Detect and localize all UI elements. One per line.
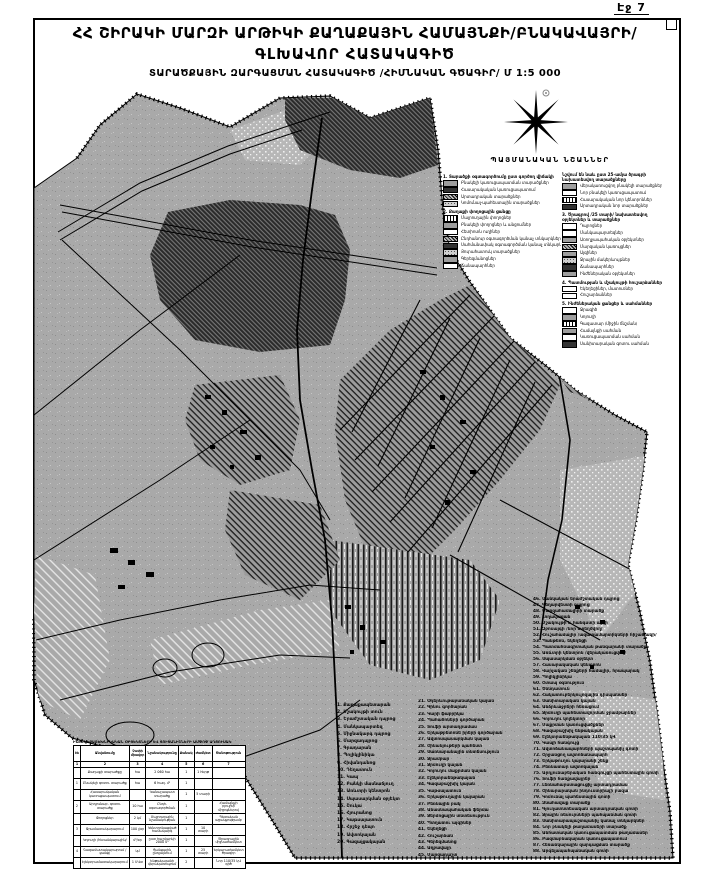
- legend-swatch-gray: [562, 183, 577, 190]
- legend-section-header: 2. Քաղաքի փողոցային ցանցը: [443, 209, 561, 214]
- legend-swatch-white: [562, 223, 577, 230]
- table-cell: Համայնքի բյուջեի միջոցներով: [212, 801, 245, 814]
- legend-item-label: Կոմունալ-պահեստային տարածքներ: [461, 200, 540, 207]
- legend-item: Կոմունալ-պահեստային տարածքներ: [443, 200, 561, 207]
- scanned-map-page: Էջ 7: [0, 0, 701, 882]
- legend-swatch-cross: [562, 286, 577, 293]
- table-cell: 5 տարի: [194, 790, 212, 801]
- legend-item-label: Սահմանափակ օգտագործման կանաչ տնկարկներ: [461, 242, 561, 249]
- legend-item-label: Ջրագիծ: [580, 307, 597, 314]
- legend-item: Ջրային մակերևույթներ: [562, 257, 666, 264]
- legend-item-label: Յուրահատուկ տարածքներ: [461, 249, 520, 256]
- table-cell: 100 լ/օր: [129, 825, 146, 836]
- table-cell: Չափի միավոր: [129, 746, 146, 762]
- table-row: Էլեկտրամատակարարում1 ՄՎտԵնթակայանի վերակ…: [74, 858, 246, 869]
- table-row: Հասարակական կառուցապատումԿանաչապատ տարած…: [74, 790, 246, 801]
- legend-item: Եկեղեցիներ, մատուռներ: [562, 286, 666, 293]
- table-cell: 1: [178, 768, 194, 779]
- legend-section-header: 1. Տարածքի օգտագործումը ըստ գործող վիճակ…: [443, 174, 561, 179]
- table-caption: ԻՆԺԵՆԵՐԱՏԵԽՆԻԿԱԿԱՆ ՕԲՅԵԿՏՆԵՐԻ ԵՎ ՑՈՒՑԱՆԻ…: [73, 739, 219, 744]
- legend-item-label: Այգիներ: [580, 250, 597, 257]
- table-cell: 10 հա: [129, 801, 146, 814]
- table-row: 3Ջրամատակարարում100 լ/օրԿենտրոնացված համ…: [74, 825, 246, 836]
- table-cell: 1: [178, 836, 194, 847]
- object-list-46-88: 46. Մանկական երաժշտական դպրոց47. Գեղարվե…: [533, 597, 691, 855]
- map-title-line2: ԳԼԽԱՎՈՐ ՀԱՏԱԿԱԳԻԾ: [40, 45, 670, 63]
- legend-item: Մանկապարտեզներ: [562, 230, 666, 237]
- legend-item-label: Մանկապարտեզներ: [580, 230, 623, 237]
- table-cell: Նշանակությունը: [146, 746, 179, 762]
- legend-swatch-dots: [443, 201, 458, 208]
- legend-item: Սանիտարական գոտու սահման: [562, 341, 666, 348]
- table-cell: 10 տարի: [194, 825, 212, 836]
- legend-item: Կառուցապատման սահման: [562, 334, 666, 341]
- table-cell: Քանակ: [178, 746, 194, 762]
- legend-swatch-gray: [562, 328, 577, 335]
- table-cell: Ընդհ. օգտագործման: [146, 801, 179, 814]
- table-cell: 2: [74, 801, 81, 814]
- legend-item-label: Բնակելի փողոցներ և անցումներ: [461, 222, 531, 229]
- table-row: Քաղաքի տարածքըհա2 060 հա11 հերթ: [74, 768, 246, 779]
- legend-section-header: 5. Ինժեներական ցանցեր և սահմաններ: [562, 301, 666, 306]
- legend-item-label: Ճանապարհներ: [461, 263, 495, 270]
- legend-item: Համայնքի սահման: [562, 328, 666, 335]
- legend-item: Արտադրական նոր տարածքներ: [562, 203, 666, 210]
- legend-item: Յուրահատուկ տարածքներ: [443, 249, 561, 256]
- legend-swatch-white: [562, 190, 577, 197]
- legend-item-label: Գերեզմանոցներ: [461, 256, 496, 263]
- legend-item: Մարզական կառույցներ: [562, 244, 666, 251]
- legend-item-label: Առողջապահական օբյեկտներ: [580, 237, 644, 244]
- table-cell: [194, 801, 212, 814]
- legend-item-label: Հասարակական կառուցապատում: [461, 187, 536, 194]
- table-cell: Կանաչապատ տարածք: [146, 790, 179, 801]
- legend-item: Հուշարձաններ: [562, 292, 666, 299]
- table-cell: 2: [178, 858, 194, 869]
- legend-item: Գերեզմանոցներ: [443, 256, 561, 263]
- legend-item-label: Կոյուղի: [580, 314, 596, 321]
- table-row: 4Գազամատակարարում /ցանց/կմՑանցային ընդլա…: [74, 847, 246, 858]
- table-row: Փողոցներ2 կմՄայրուղային նշանակության1Պետ…: [74, 814, 246, 825]
- legend-item-label: Մարզական կառույցներ: [580, 244, 631, 251]
- table-cell: հա: [129, 768, 146, 779]
- table-cell: Ծրագրային միջնաժամկետ: [212, 836, 245, 847]
- table-cell: Բնակելի գոտու տարածք: [80, 779, 129, 790]
- table-cell: [194, 858, 212, 869]
- legend-swatch-dark: [443, 187, 458, 194]
- table-cell: Արդյունաբ. գոտու տարածք: [80, 801, 129, 814]
- table-cell: 2 060 հա: [146, 768, 179, 779]
- table-cell: 2 կմ: [129, 814, 146, 825]
- table-cell: Ժամկետ: [194, 746, 212, 762]
- legend-swatch-dark: [562, 341, 577, 348]
- legend-item: Արտադրական տարածքներ: [443, 194, 561, 201]
- legend-item-label: Ընդհանուր օգտագործման կանաչ տնկարկներ: [461, 236, 561, 243]
- table-cell: [74, 768, 81, 779]
- table-cell: Հասարակական կառուցապատում: [80, 790, 129, 801]
- table-cell: հա: [129, 779, 146, 790]
- compass-rose-icon: [504, 90, 568, 154]
- table-row: Կոյուղի /հեռանկարային/մ³/օրըստ հաշվարկի …: [74, 836, 246, 847]
- table-cell: Պետական աջակցությամբ: [212, 814, 245, 825]
- legend-item: Առողջապահական օբյեկտներ: [562, 237, 666, 244]
- table-cell: [74, 858, 81, 869]
- legend-swatch-white: [562, 307, 577, 314]
- legend-heading: ՊԱՅՄԱՆԱԿԱՆ ՆՇԱՆՆԵՐ: [470, 156, 630, 164]
- table-cell: 1: [178, 801, 194, 814]
- legend-item-label: Սանիտարական գոտու սահման: [580, 341, 649, 348]
- table-cell: Փողոցներ: [80, 814, 129, 825]
- table-cell: Ենթակայանի վերակառուցում: [146, 858, 179, 869]
- table-cell: [194, 836, 212, 847]
- legend-item-label: Բնակելի կառուցապատման տարածքներ: [461, 180, 549, 187]
- legend-item: Գազատար /միջին ճնշման/: [562, 321, 666, 328]
- table-cell: մ³/օր: [129, 836, 146, 847]
- map-subtitle-scale: ՏԱՐԱԾՔԱՅԻՆ ԶԱՐԳԱՑՄԱՆ ՀԱՏԱԿԱԳԻԾ /ՀԻՄՆԱԿԱՆ…: [40, 68, 670, 79]
- legend-swatch-hatch: [443, 194, 458, 201]
- table-cell: [212, 790, 245, 801]
- legend-swatch-dots: [562, 257, 577, 264]
- table-cell: 4: [74, 847, 81, 858]
- legend-swatch-gray: [562, 251, 577, 258]
- list-item: 88. Արգելապահպանական գոտի: [533, 849, 691, 855]
- table-cell: 1: [178, 847, 194, 858]
- table-cell: Էլեկտրամատակարարում: [80, 858, 129, 869]
- legend-swatch-stripe: [562, 197, 577, 204]
- table-cell: Կենտրոնացված համակարգ: [146, 825, 179, 836]
- table-cell: 1: [74, 779, 81, 790]
- object-list-21-45: 21. Օդերևութաբանական կայան22. Գինու գործ…: [418, 699, 530, 859]
- table-cell: №: [74, 746, 81, 762]
- legend-item-label: Արտադրական նոր տարածքներ: [580, 203, 648, 210]
- legend-item: Վերակառուցվող բնակելի տարածքներ: [562, 183, 666, 190]
- legend-item: Կոյուղի: [562, 314, 666, 321]
- legend-item-label: Հասարակական նոր կենտրոններ: [580, 197, 652, 204]
- table-cell: Ջրամատակարարում: [80, 825, 129, 836]
- legend-item-label: Գազատար /միջին ճնշման/: [580, 321, 637, 328]
- table-cell: ըստ հաշվարկի 2000 մ³: [146, 836, 179, 847]
- legend-item-label: Արտադրական տարածքներ: [461, 194, 521, 201]
- table-cell: Անվանումը: [80, 746, 129, 762]
- table-cell: Ծանոթություն: [212, 746, 245, 762]
- legend-swatch-gray: [562, 271, 577, 278]
- table-cell: 1: [178, 790, 194, 801]
- legend-item-label: Հուշարձաններ: [580, 292, 612, 299]
- legend-item-label: Կառուցապատման սահման: [580, 334, 640, 341]
- list-item: 45. Մարզադաշտ: [418, 853, 530, 859]
- table-cell: Նոր 110/35 կՎ գիծ: [212, 858, 245, 869]
- legend-item: Այգիներ: [562, 250, 666, 257]
- table-cell: Երկարաժամկետ ծրագիր: [212, 847, 245, 858]
- legend-swatch-stripe: [443, 215, 458, 222]
- table-cell: [194, 779, 212, 790]
- table-cell: 3: [74, 825, 81, 836]
- title-block: ՀՀ ՇԻՐԱԿԻ ՄԱՐԶԻ ԱՐԹԻԿԻ ՔԱՂԱՔԱՅԻՆ ՀԱՄԱՅՆՔ…: [40, 24, 670, 79]
- legend-item-label: Վերակառուցվող բնակելի տարածքներ: [580, 183, 662, 190]
- table-cell: Ցանցային ընդլայնում: [146, 847, 179, 858]
- legend-swatch-gray: [562, 314, 577, 321]
- legend-section-header: 3. Ծրագրով /25 տարի/ նախատեսվող օբյեկտնե…: [562, 212, 666, 222]
- map-title-line1: ՀՀ ՇԻՐԱԿԻ ՄԱՐԶԻ ԱՐԹԻԿԻ ՔԱՂԱՔԱՅԻՆ ՀԱՄԱՅՆՔ…: [40, 24, 670, 42]
- legend-section-header: Նշվում են նաև ըստ 25-ամյա ծրագրի նախատես…: [562, 172, 666, 182]
- legend-item: Հետիոտն ուղիներ: [443, 229, 561, 236]
- legend-item: Ճանապարհներ: [562, 264, 666, 271]
- table-row: 2Արդյունաբ. գոտու տարածք10 հաԸնդհ. օգտագ…: [74, 801, 246, 814]
- legend-item: Բնակելի կառուցապատման տարածքներ: [443, 180, 561, 187]
- legend-item-label: Նոր բնակելի կառուցապատում: [580, 190, 646, 197]
- table-cell: [194, 814, 212, 825]
- legend-swatch-dots: [443, 249, 458, 256]
- table-cell: [212, 768, 245, 779]
- legend-swatch-white: [562, 293, 577, 300]
- legend-swatch-gray: [443, 222, 458, 229]
- table-cell: 25 տարի: [194, 847, 212, 858]
- table-cell: 6 հազ. մ²: [146, 779, 179, 790]
- table-row: №ԱնվանումըՉափի միավորՆշանակությունըՔանակ…: [74, 746, 246, 762]
- legend-item-label: Մայրուղային փողոցներ: [461, 215, 511, 222]
- table-cell: [74, 790, 81, 801]
- legend-swatch-stripe: [562, 321, 577, 328]
- legend-item-label: Համայնքի սահման: [580, 328, 621, 335]
- legend-item: Մայրուղային փողոցներ: [443, 215, 561, 222]
- table-cell: [74, 814, 81, 825]
- legend-swatch-gray: [443, 180, 458, 187]
- legend-swatch-white: [562, 334, 577, 341]
- table-cell: 1: [178, 779, 194, 790]
- legend-item: Դպրոցներ: [562, 223, 666, 230]
- table-cell: Գազամատակարարում /ցանց/: [80, 847, 129, 858]
- table-cell: [212, 825, 245, 836]
- legend-swatch-hatch: [562, 244, 577, 251]
- table-cell: Քաղաքի տարածքը: [80, 768, 129, 779]
- table-cell: 1: [178, 825, 194, 836]
- table-cell: [129, 790, 146, 801]
- table-cell: [212, 779, 245, 790]
- indicators-table: №ԱնվանումըՉափի միավորՆշանակությունըՔանակ…: [73, 745, 246, 869]
- legend-swatch-hatch: [443, 236, 458, 243]
- table-row: 1Բնակելի գոտու տարածքհա6 հազ. մ²1: [74, 779, 246, 790]
- table-cell: 1 ՄՎտ: [129, 858, 146, 869]
- legend-item: Սահմանափակ օգտագործման կանաչ տնկարկներ: [443, 242, 561, 249]
- legend-item-label: Դպրոցներ: [580, 223, 602, 230]
- legend-item: Հասարակական նոր կենտրոններ: [562, 197, 666, 204]
- table-cell: կմ: [129, 847, 146, 858]
- table-cell: Կոյուղի /հեռանկարային/: [80, 836, 129, 847]
- legend-swatch-gray: [562, 237, 577, 244]
- legend-section-header: 4. Պատմության և մշակույթի հուշարձաններ: [562, 280, 666, 285]
- legend-swatch-white: [443, 263, 458, 270]
- legend-item: Ընդհանուր օգտագործման կանաչ տնկարկներ: [443, 236, 561, 243]
- legend-swatch-dark: [562, 204, 577, 211]
- legend-item: Ջրագիծ: [562, 307, 666, 314]
- legend-item-label: Եկեղեցիներ, մատուռներ: [580, 286, 633, 293]
- legend-column-2: Նշվում են նաև ըստ 25-ամյա ծրագրի նախատես…: [562, 170, 666, 348]
- legend-swatch-white: [562, 230, 577, 237]
- legend-item-label: Ջրային մակերևույթներ: [580, 257, 630, 264]
- legend-swatch-gray: [443, 256, 458, 263]
- legend-column-1: 1. Տարածքի օգտագործումը ըստ գործող վիճակ…: [443, 172, 561, 270]
- legend-swatch-dark: [443, 243, 458, 250]
- table-cell: 1 հերթ: [194, 768, 212, 779]
- legend-item: Հասարակական կառուցապատում: [443, 187, 561, 194]
- legend-item-label: Հետիոտն ուղիներ: [461, 229, 500, 236]
- legend-item-label: Ճանապարհներ: [580, 264, 614, 271]
- legend-swatch-dark: [562, 264, 577, 271]
- legend-item: Ճանապարհներ: [443, 263, 561, 270]
- legend-item: Նոր բնակելի կառուցապատում: [562, 190, 666, 197]
- table-cell: 1: [178, 814, 194, 825]
- legend-item-label: Ինժեներական օբյեկտներ: [580, 271, 635, 278]
- legend-swatch-white: [443, 229, 458, 236]
- indicators-table-block: ԻՆԺԵՆԵՐԱՏԵԽՆԻԿԱԿԱՆ ՕԲՅԵԿՏՆԵՐԻ ԵՎ ՑՈՒՑԱՆԻ…: [73, 739, 219, 869]
- table-cell: Մայրուղային նշանակության: [146, 814, 179, 825]
- legend-item: Բնակելի փողոցներ և անցումներ: [443, 222, 561, 229]
- table-cell: [74, 836, 81, 847]
- legend-item: Ինժեներական օբյեկտներ: [562, 271, 666, 278]
